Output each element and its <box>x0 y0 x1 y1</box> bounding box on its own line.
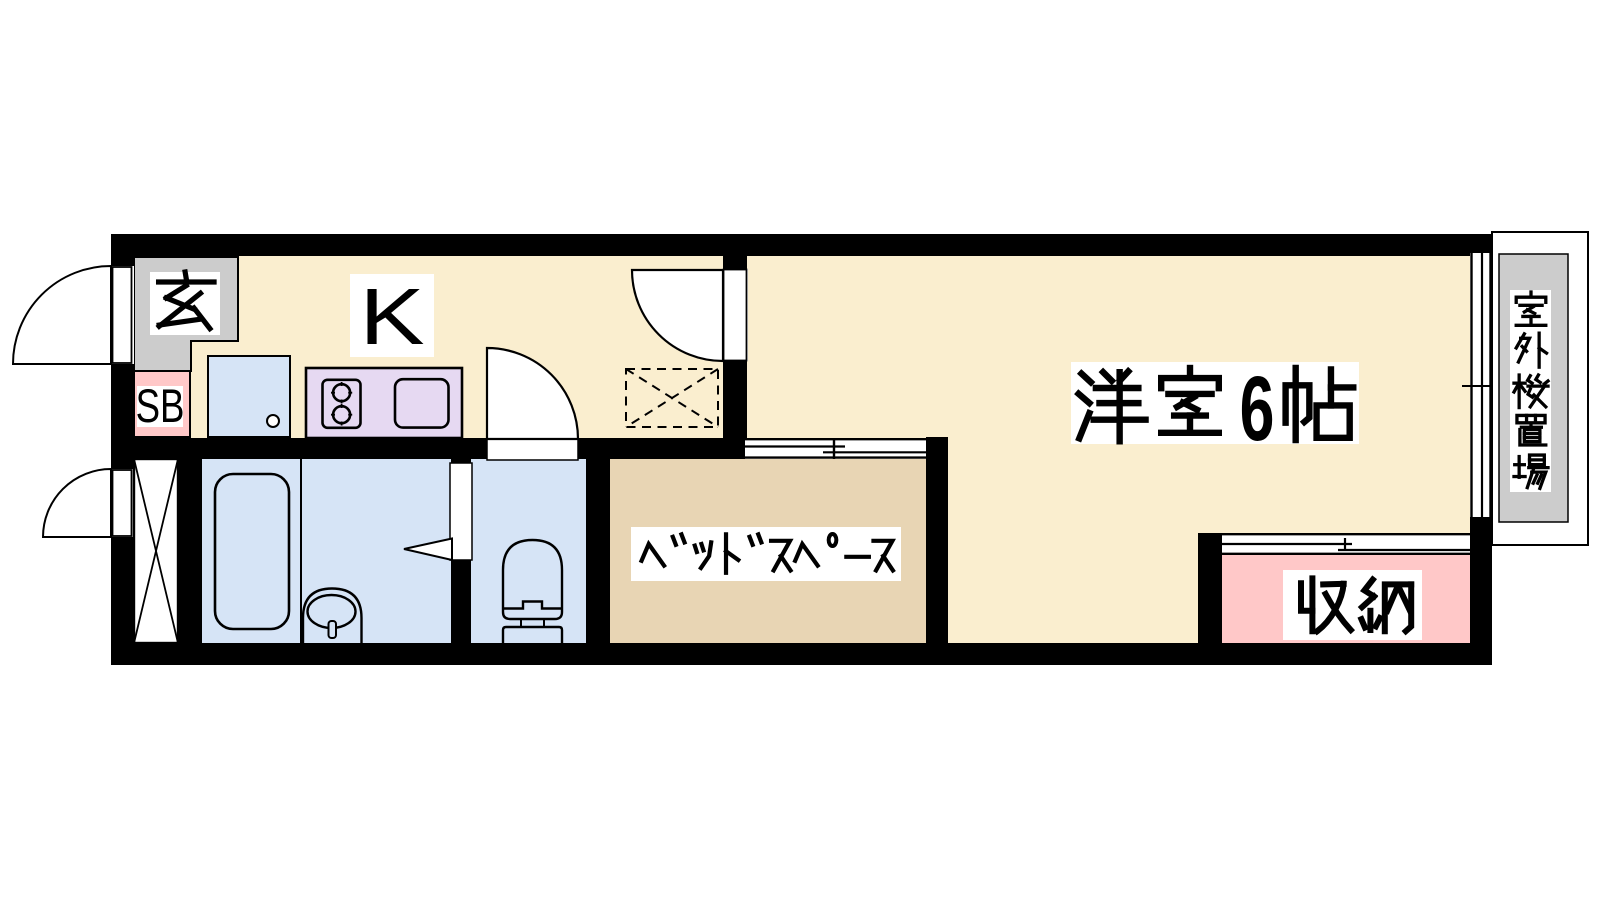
svg-text:SB: SB <box>136 380 185 432</box>
svg-text:6: 6 <box>1240 357 1275 460</box>
svg-text:K: K <box>359 271 424 361</box>
